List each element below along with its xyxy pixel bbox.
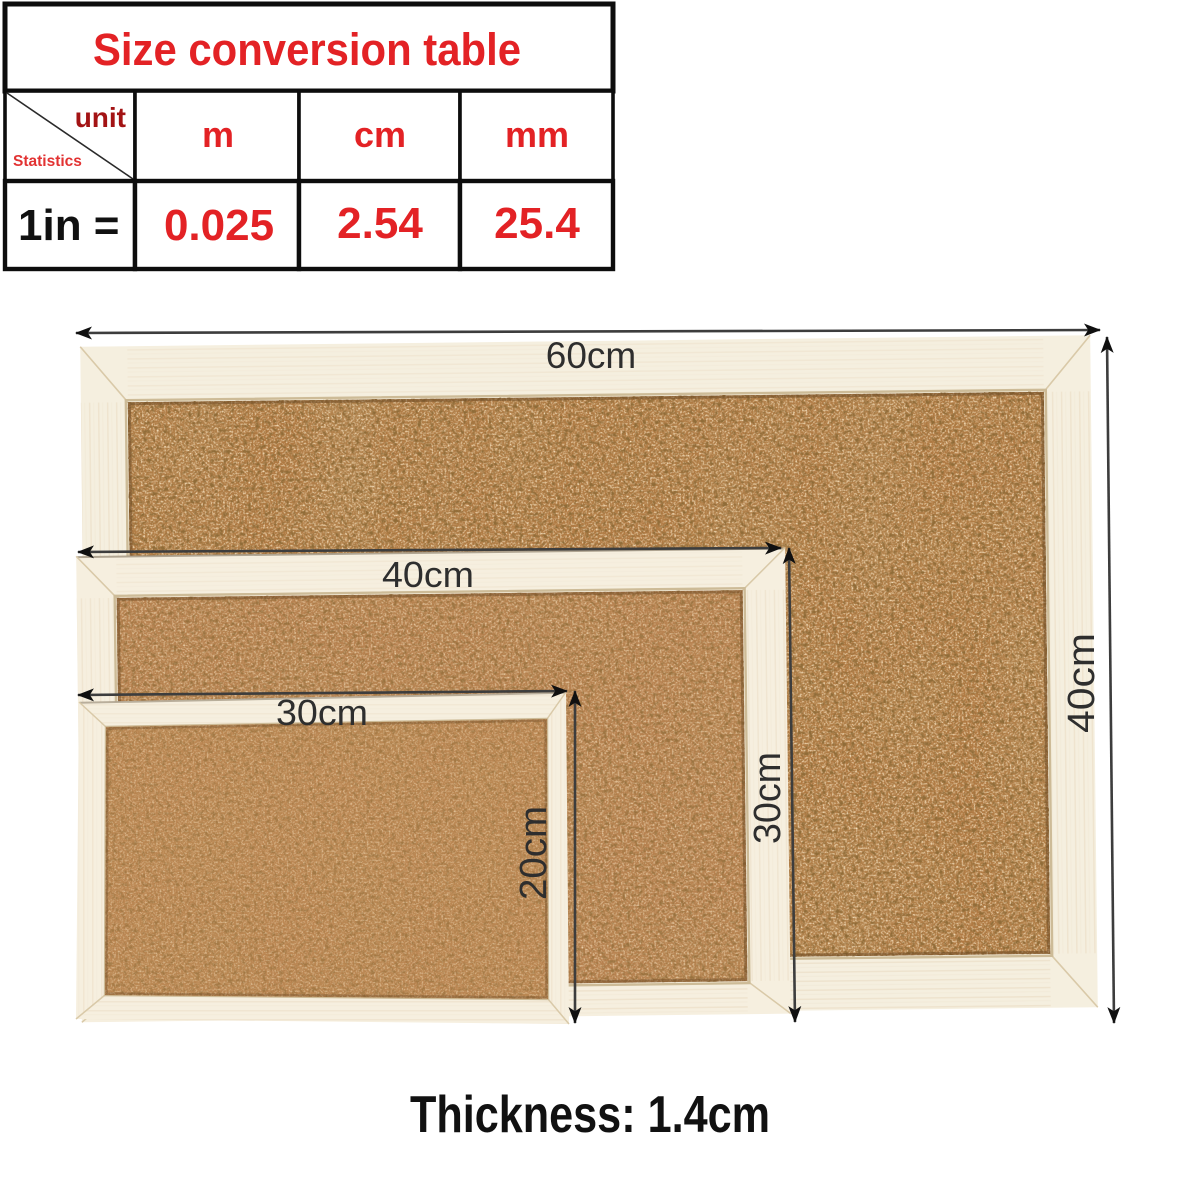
svg-text:Statistics: Statistics [13, 153, 82, 170]
svg-text:1in =: 1in = [18, 201, 120, 250]
svg-text:60cm: 60cm [546, 335, 636, 376]
svg-text:m: m [202, 114, 234, 155]
svg-text:2.54: 2.54 [337, 199, 423, 248]
svg-text:Size conversion table: Size conversion table [93, 24, 521, 75]
svg-text:0.025: 0.025 [164, 201, 274, 250]
svg-text:40cm: 40cm [382, 554, 474, 595]
svg-text:mm: mm [505, 114, 569, 155]
svg-text:cm: cm [354, 114, 406, 155]
svg-text:Thickness: 1.4cm: Thickness: 1.4cm [410, 1086, 770, 1144]
svg-text:30cm: 30cm [276, 692, 368, 733]
svg-text:40cm: 40cm [1061, 633, 1103, 733]
svg-text:20cm: 20cm [513, 806, 555, 900]
svg-text:25.4: 25.4 [494, 199, 580, 248]
svg-text:unit: unit [75, 102, 126, 133]
svg-text:30cm: 30cm [747, 752, 789, 844]
